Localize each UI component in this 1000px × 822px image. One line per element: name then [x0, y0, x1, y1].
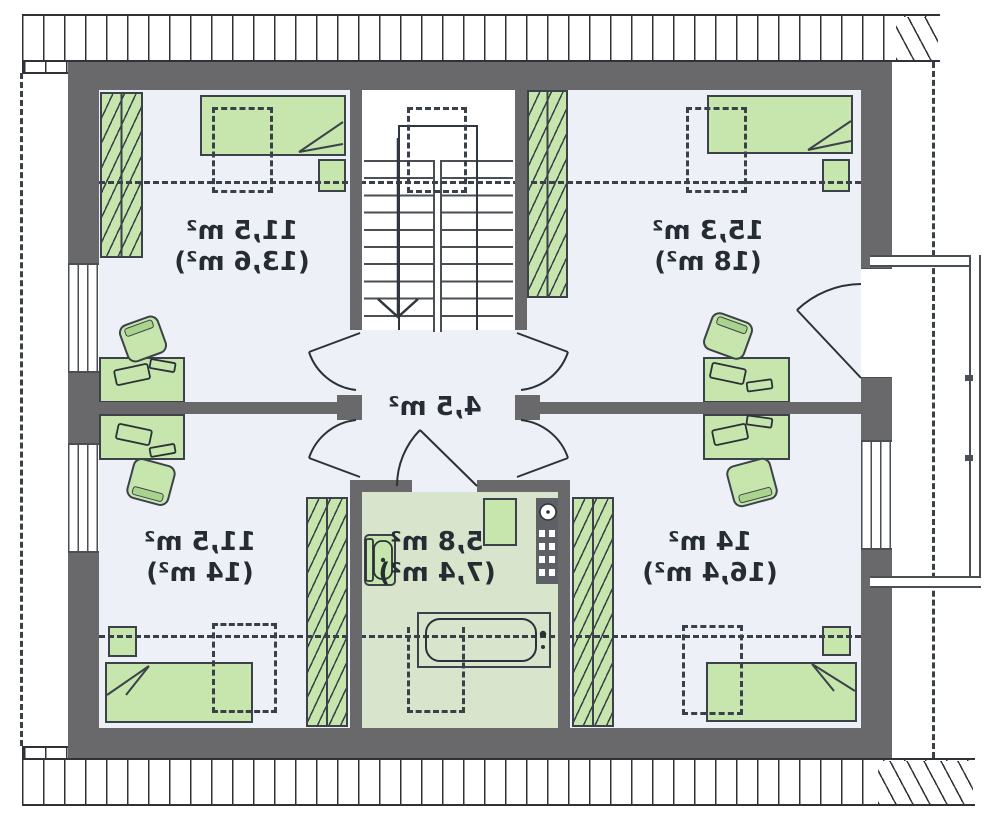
room-area: 15,3 m² — [588, 216, 828, 247]
room-area: 5,8 m² — [317, 527, 557, 558]
room-area-note: (14 m²) — [80, 558, 320, 589]
room-label-bathroom: 5,8 m² (7,4 m²) — [317, 527, 557, 589]
room-label-top-left: 11,5 m² (13,6 m²) — [122, 216, 362, 278]
room-area-note: (18 m²) — [588, 247, 828, 278]
room-area-note: (13,6 m²) — [122, 247, 362, 278]
room-area: 11,5 m² — [80, 527, 320, 558]
room-label-bottom-right: 14 m² (16,4 m²) — [590, 527, 830, 589]
door-swing-top-right — [517, 333, 568, 390]
room-area: 11,5 m² — [122, 216, 362, 247]
door-swing-bathroom — [397, 430, 477, 486]
room-area: 14 m² — [590, 527, 830, 558]
room-label-top-right: 15,3 m² (18 m²) — [588, 216, 828, 278]
bathtub-detail — [426, 619, 546, 661]
door-swing-top-left — [309, 333, 360, 390]
door-swing-bottom-left — [309, 420, 360, 477]
door-swing-bottom-right — [517, 420, 568, 477]
room-area-note: (7,4 m²) — [317, 558, 557, 589]
room-area-note: (16,4 m²) — [590, 558, 830, 589]
room-area: 4,5 m² — [315, 392, 555, 423]
floor-plan: 11,5 m² (13,6 m²) 15,3 m² (18 m²) 4,5 m²… — [0, 0, 1000, 822]
room-label-hall: 4,5 m² — [315, 392, 555, 423]
door-swing-balcony — [797, 284, 861, 378]
stair-arrow — [378, 138, 418, 317]
room-label-bottom-left: 11,5 m² (14 m²) — [80, 527, 320, 589]
